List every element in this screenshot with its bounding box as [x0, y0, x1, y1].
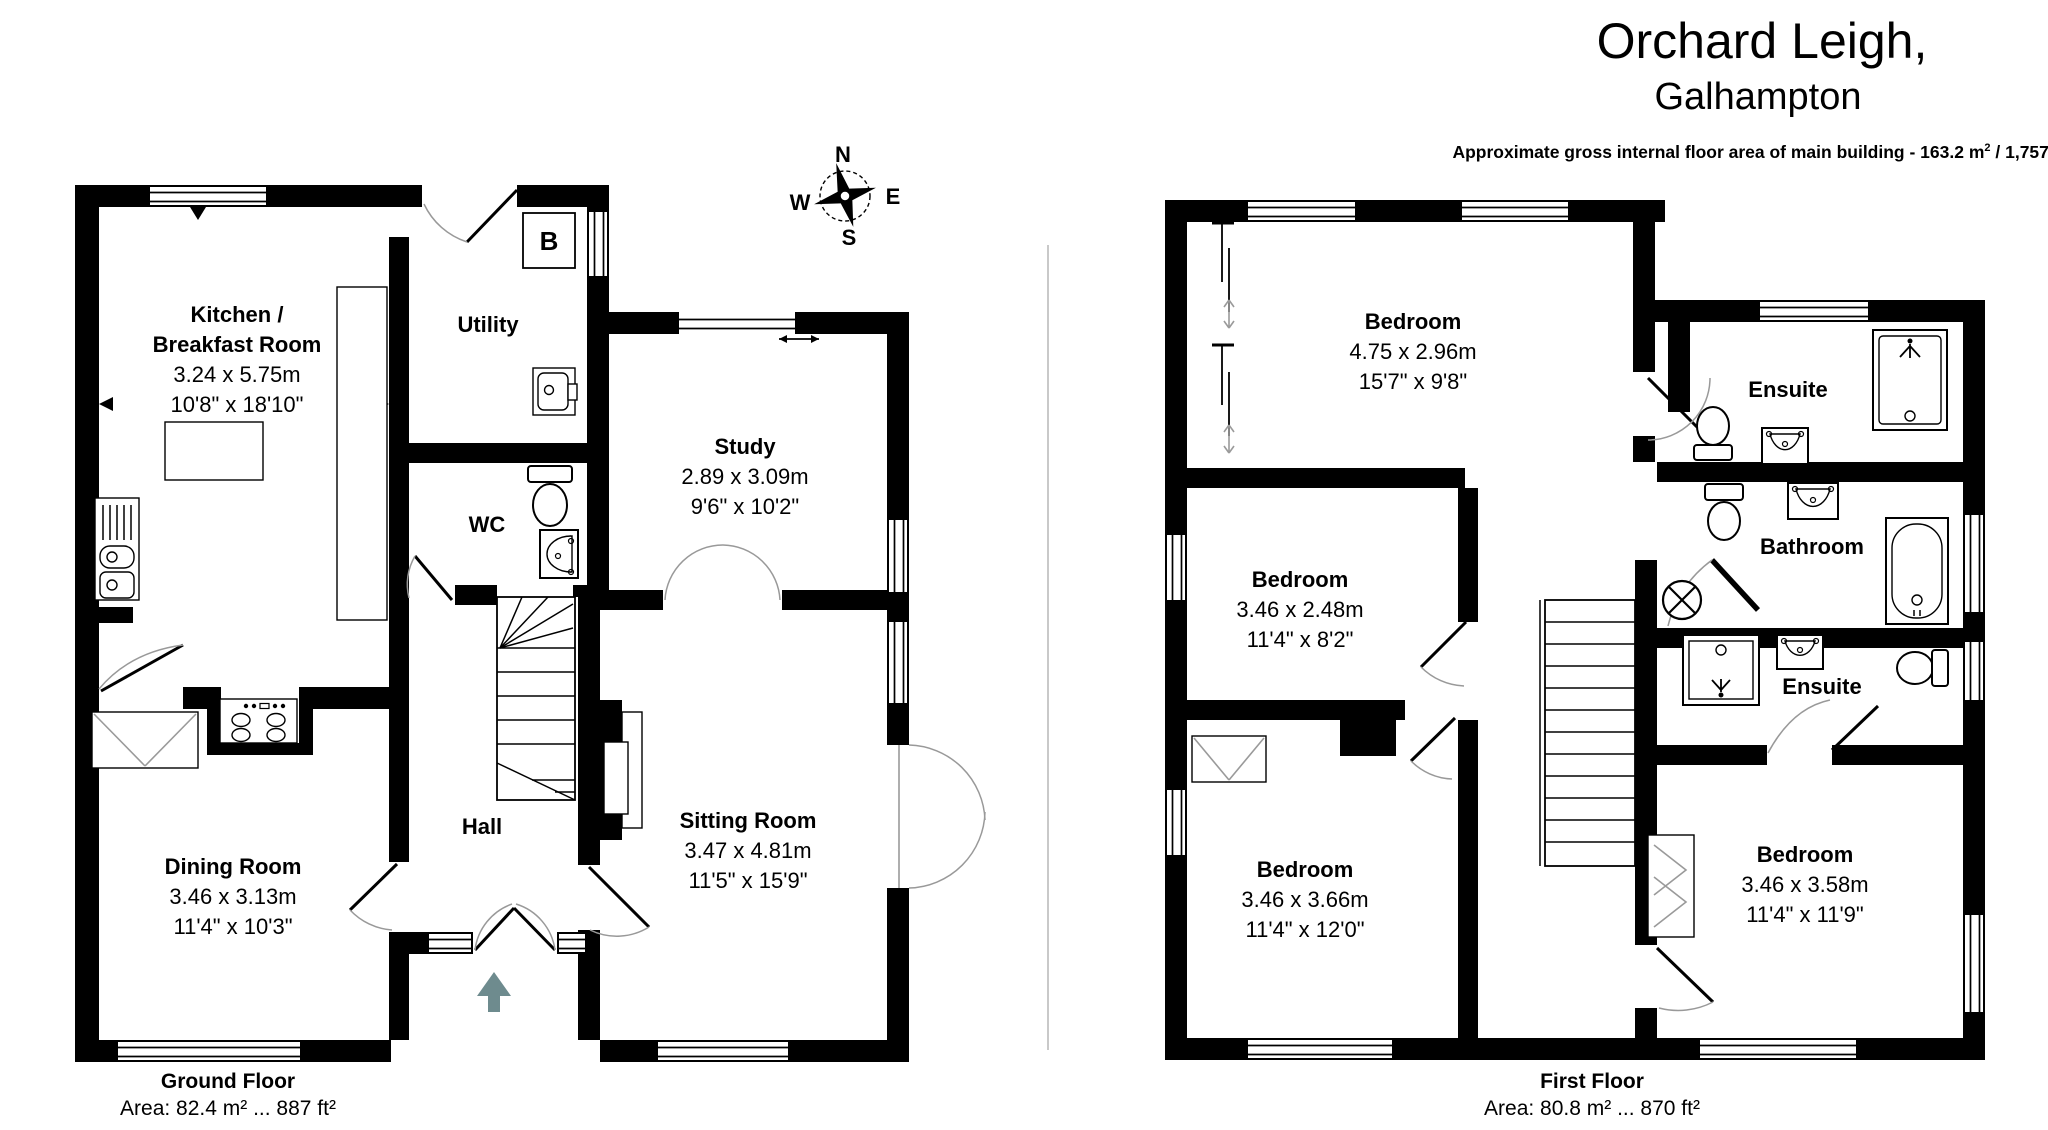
room-name: Bedroom	[1349, 307, 1476, 337]
wc-toilet-icon	[528, 466, 572, 526]
room-label-wc: WC	[469, 510, 506, 540]
compass-n: N	[835, 142, 851, 167]
room-label-bedroom2: Bedroom 3.46 x 2.48m 11'4" x 8'2"	[1236, 565, 1363, 655]
page-subtitle: Galhampton	[1654, 76, 1861, 119]
room-name: Bedroom	[1741, 840, 1868, 870]
room-label-study: Study 2.89 x 3.09m 9'6" x 10'2"	[681, 432, 808, 522]
area-note-text: Approximate gross internal floor area of…	[1452, 142, 1984, 162]
ensuite1-shower-icon	[1873, 330, 1947, 430]
compass-w: W	[790, 190, 811, 215]
rooflight-icon	[1663, 581, 1701, 619]
floor-name: First Floor	[1484, 1068, 1700, 1095]
room-name: WC	[469, 510, 506, 540]
room-label-bathroom: Bathroom	[1760, 532, 1864, 562]
room-label-dining: Dining Room 3.46 x 3.13m 11'4" x 10'3"	[165, 852, 302, 942]
kitchen-sink	[95, 498, 139, 600]
room-imperial: 9'6" x 10'2"	[681, 492, 808, 522]
bath-icon	[1886, 518, 1948, 624]
room-metric: 3.46 x 3.66m	[1241, 885, 1368, 915]
room-metric: 3.47 x 4.81m	[680, 836, 817, 866]
room-name: Ensuite	[1782, 672, 1861, 702]
sliding-door-arrow-icon	[779, 335, 819, 343]
room-name: Utility	[457, 310, 518, 340]
room-imperial: 11'4" x 11'9"	[1741, 900, 1868, 930]
room-imperial: 11'4" x 8'2"	[1236, 625, 1363, 655]
room-name: Study	[681, 432, 808, 462]
compass-rose: N E S W	[790, 142, 901, 250]
area-note-text2: / 1,757 ft	[1991, 142, 2048, 162]
page-title: Orchard Leigh,	[1597, 12, 1928, 70]
ground-floor-caption: Ground Floor Area: 82.4 m² ... 887 ft²	[120, 1068, 336, 1122]
first-stairs	[1540, 600, 1635, 866]
room-name: Sitting Room	[680, 806, 817, 836]
dining-wardrobe	[92, 712, 198, 768]
entrance-arrow	[477, 972, 511, 1012]
bathroom-toilet-icon	[1705, 484, 1743, 540]
room-name: Bedroom	[1236, 565, 1363, 595]
floor-area-note: Approximate gross internal floor area of…	[1452, 142, 2048, 163]
bedroom3-wardrobe	[1192, 736, 1266, 782]
ensuite2-shower-icon	[1683, 635, 1759, 705]
bathroom-basin-icon	[1788, 483, 1838, 519]
room-metric: 3.46 x 2.48m	[1236, 595, 1363, 625]
room-imperial: 15'7" x 9'8"	[1349, 367, 1476, 397]
room-label-bedroom1: Bedroom 4.75 x 2.96m 15'7" x 9'8"	[1349, 307, 1476, 397]
sloped-ceiling-indicators	[1212, 223, 1234, 453]
floorplan-drawing: B N E S	[0, 0, 2048, 1130]
floor-area: Area: 82.4 m² ... 887 ft²	[120, 1095, 336, 1122]
wc-basin-icon	[540, 530, 578, 578]
boiler-label: B	[540, 226, 559, 256]
room-name: Hall	[462, 812, 502, 842]
room-imperial: 11'5" x 15'9"	[680, 866, 817, 896]
ensuite1-basin-icon	[1762, 428, 1808, 464]
room-label-ensuite2: Ensuite	[1782, 672, 1861, 702]
room-metric: 3.24 x 5.75m	[153, 360, 322, 390]
room-metric: 2.89 x 3.09m	[681, 462, 808, 492]
room-metric: 3.46 x 3.13m	[165, 882, 302, 912]
room-imperial: 11'4" x 10'3"	[165, 912, 302, 942]
room-label-hall: Hall	[462, 812, 502, 842]
room-label-utility: Utility	[457, 310, 518, 340]
room-label-kitchen: Kitchen / Breakfast Room 3.24 x 5.75m 10…	[153, 300, 322, 420]
ground-stairs	[497, 597, 575, 800]
floor-name: Ground Floor	[120, 1068, 336, 1095]
room-label-bedroom3: Bedroom 3.46 x 3.66m 11'4" x 12'0"	[1241, 855, 1368, 945]
room-name: Bedroom	[1241, 855, 1368, 885]
room-metric: 4.75 x 2.96m	[1349, 337, 1476, 367]
room-label-ensuite1: Ensuite	[1748, 375, 1827, 405]
plan-divider	[1047, 245, 1049, 1050]
room-name: Breakfast Room	[153, 330, 322, 360]
room-imperial: 10'8" x 18'10"	[153, 390, 322, 420]
room-imperial: 11'4" x 12'0"	[1241, 915, 1368, 945]
compass-s: S	[842, 225, 857, 250]
room-label-sitting: Sitting Room 3.47 x 4.81m 11'5" x 15'9"	[680, 806, 817, 896]
ensuite1-toilet-icon	[1694, 407, 1732, 460]
room-label-bedroom4: Bedroom 3.46 x 3.58m 11'4" x 11'9"	[1741, 840, 1868, 930]
ensuite2-basin-icon	[1777, 635, 1823, 669]
boiler: B	[523, 213, 575, 268]
compass-e: E	[886, 184, 901, 209]
room-name: Kitchen /	[153, 300, 322, 330]
fireplace	[598, 700, 642, 840]
room-metric: 3.46 x 3.58m	[1741, 870, 1868, 900]
utility-sink	[533, 368, 577, 415]
room-name: Bathroom	[1760, 532, 1864, 562]
floor-area: Area: 80.8 m² ... 870 ft²	[1484, 1095, 1700, 1122]
oven-hob	[220, 699, 297, 743]
floorplan-page: B N E S	[0, 0, 2048, 1130]
room-name: Ensuite	[1748, 375, 1827, 405]
ensuite2-toilet-icon	[1897, 650, 1948, 686]
room-name: Dining Room	[165, 852, 302, 882]
bedroom4-wardrobe	[1648, 835, 1694, 937]
first-floor-caption: First Floor Area: 80.8 m² ... 870 ft²	[1484, 1068, 1700, 1122]
